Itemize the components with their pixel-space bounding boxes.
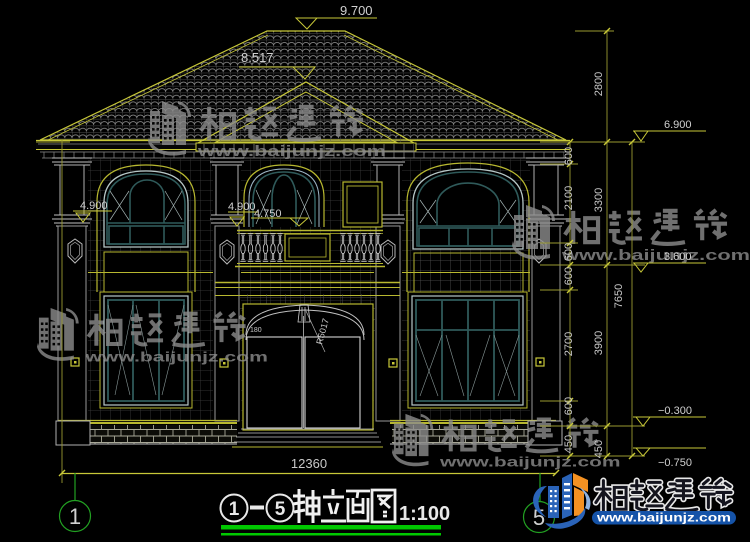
svg-text:6.900: 6.900 xyxy=(664,119,692,131)
svg-text:4.750: 4.750 xyxy=(254,208,282,220)
svg-text:5: 5 xyxy=(275,499,286,520)
svg-text:600: 600 xyxy=(563,267,575,285)
svg-text:3900: 3900 xyxy=(593,331,605,355)
svg-text:8.517: 8.517 xyxy=(241,50,274,65)
svg-text:1:100: 1:100 xyxy=(399,503,450,525)
svg-text:−0.750: −0.750 xyxy=(658,457,692,469)
svg-text:4.900: 4.900 xyxy=(228,201,256,213)
svg-text:4.900: 4.900 xyxy=(80,200,108,212)
svg-text:450: 450 xyxy=(593,440,605,458)
svg-text:180: 180 xyxy=(250,327,262,334)
svg-text:7650: 7650 xyxy=(613,284,625,308)
svg-text:12360: 12360 xyxy=(291,456,327,471)
svg-text:2800: 2800 xyxy=(593,72,605,96)
svg-text:3300: 3300 xyxy=(593,188,605,212)
svg-text:600: 600 xyxy=(563,397,575,415)
svg-text:www.baijunjz.com: www.baijunjz.com xyxy=(596,511,731,525)
svg-text:−0.300: −0.300 xyxy=(658,405,692,417)
svg-text:450: 450 xyxy=(563,435,575,453)
svg-text:600: 600 xyxy=(563,243,575,261)
svg-text:9.700: 9.700 xyxy=(340,3,373,18)
svg-text:2100: 2100 xyxy=(563,186,575,210)
svg-text:3.600: 3.600 xyxy=(664,251,692,263)
svg-text:1: 1 xyxy=(69,504,81,529)
svg-text:1: 1 xyxy=(229,499,240,520)
svg-text:600: 600 xyxy=(563,147,575,165)
svg-text:2700: 2700 xyxy=(563,332,575,356)
